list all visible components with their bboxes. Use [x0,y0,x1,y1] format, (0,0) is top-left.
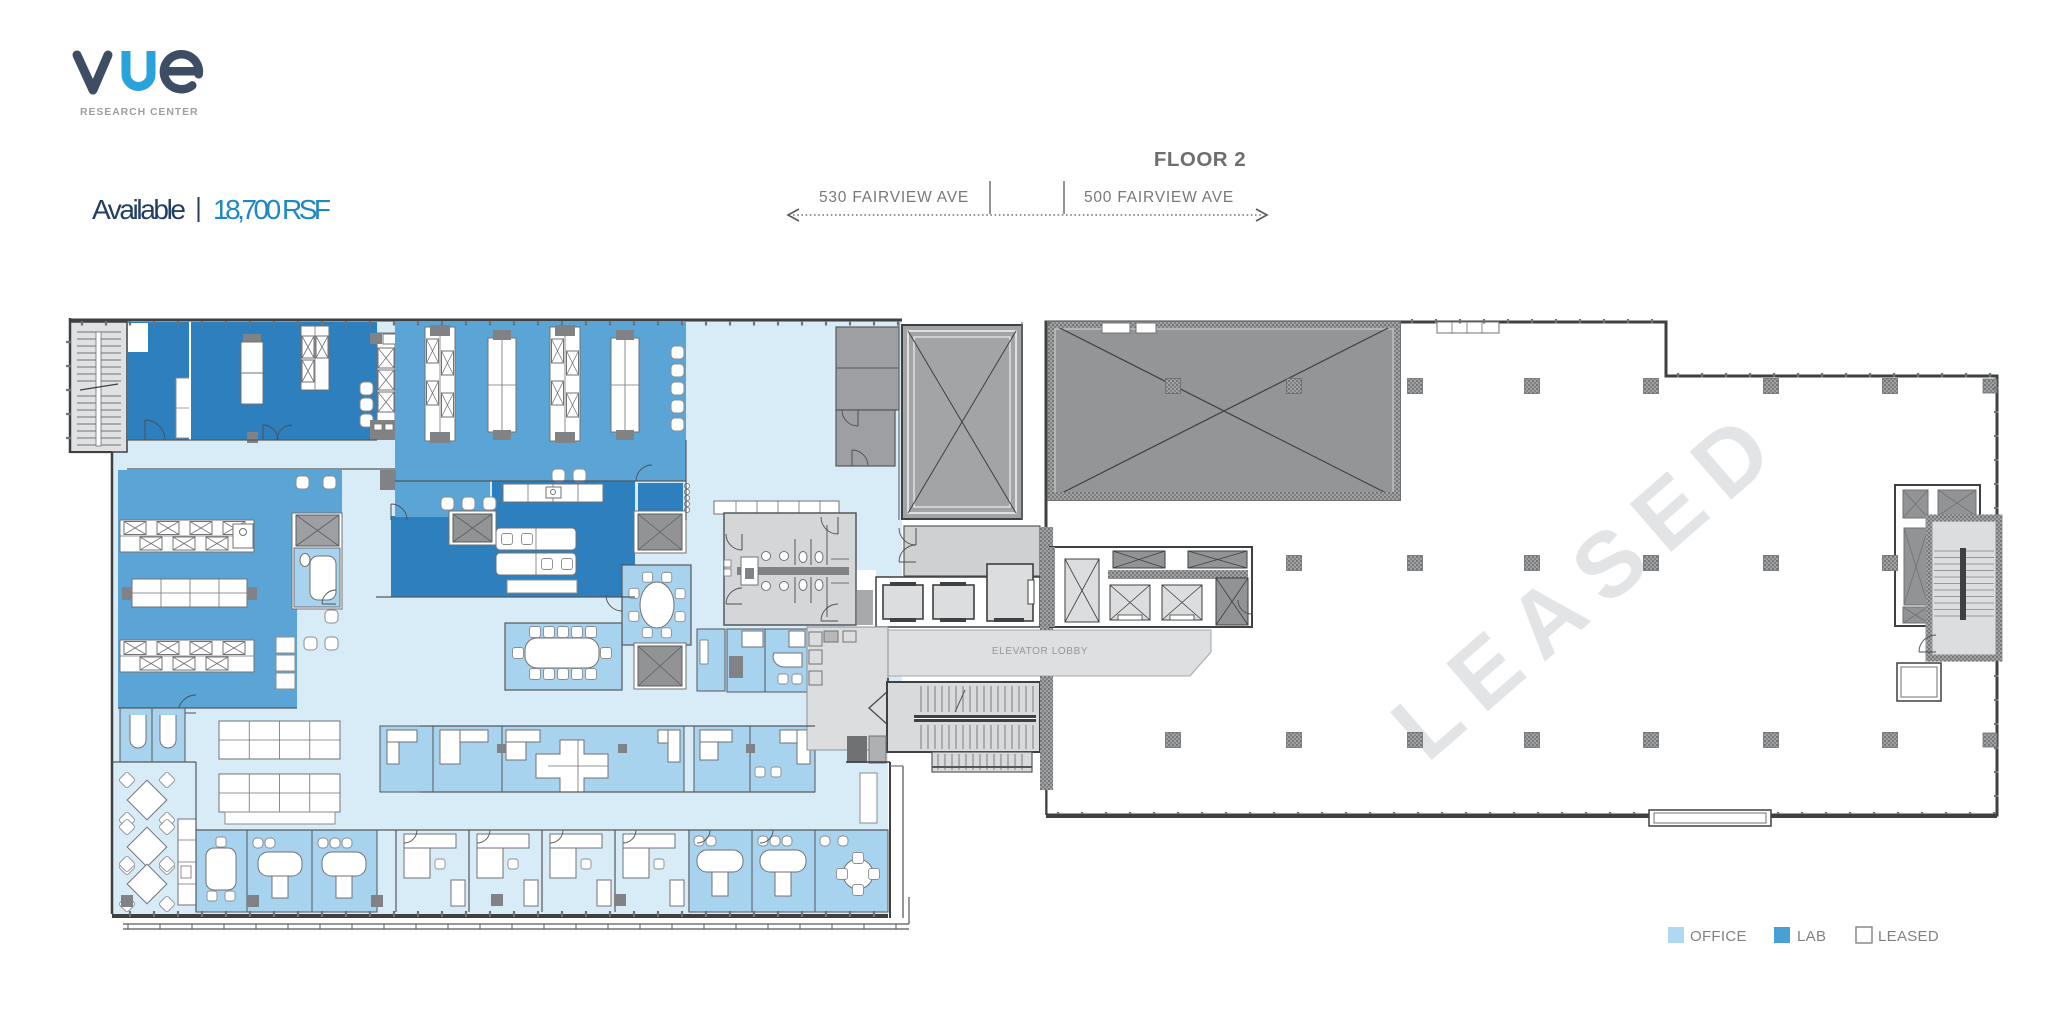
svg-text:18,700 RSF: 18,700 RSF [213,194,331,225]
svg-text:OFFICE: OFFICE [1690,928,1747,945]
svg-text:530 FAIRVIEW AVE: 530 FAIRVIEW AVE [819,189,969,206]
svg-text:LEASED: LEASED [1878,928,1939,945]
svg-text:FLOOR 2: FLOOR 2 [1154,148,1246,171]
svg-text:ELEVATOR LOBBY: ELEVATOR LOBBY [992,646,1088,657]
svg-text:500 FAIRVIEW AVE: 500 FAIRVIEW AVE [1084,189,1234,206]
svg-text:RESEARCH CENTER: RESEARCH CENTER [80,106,199,118]
svg-text:LAB: LAB [1797,928,1826,945]
svg-text:Available: Available [92,194,186,225]
